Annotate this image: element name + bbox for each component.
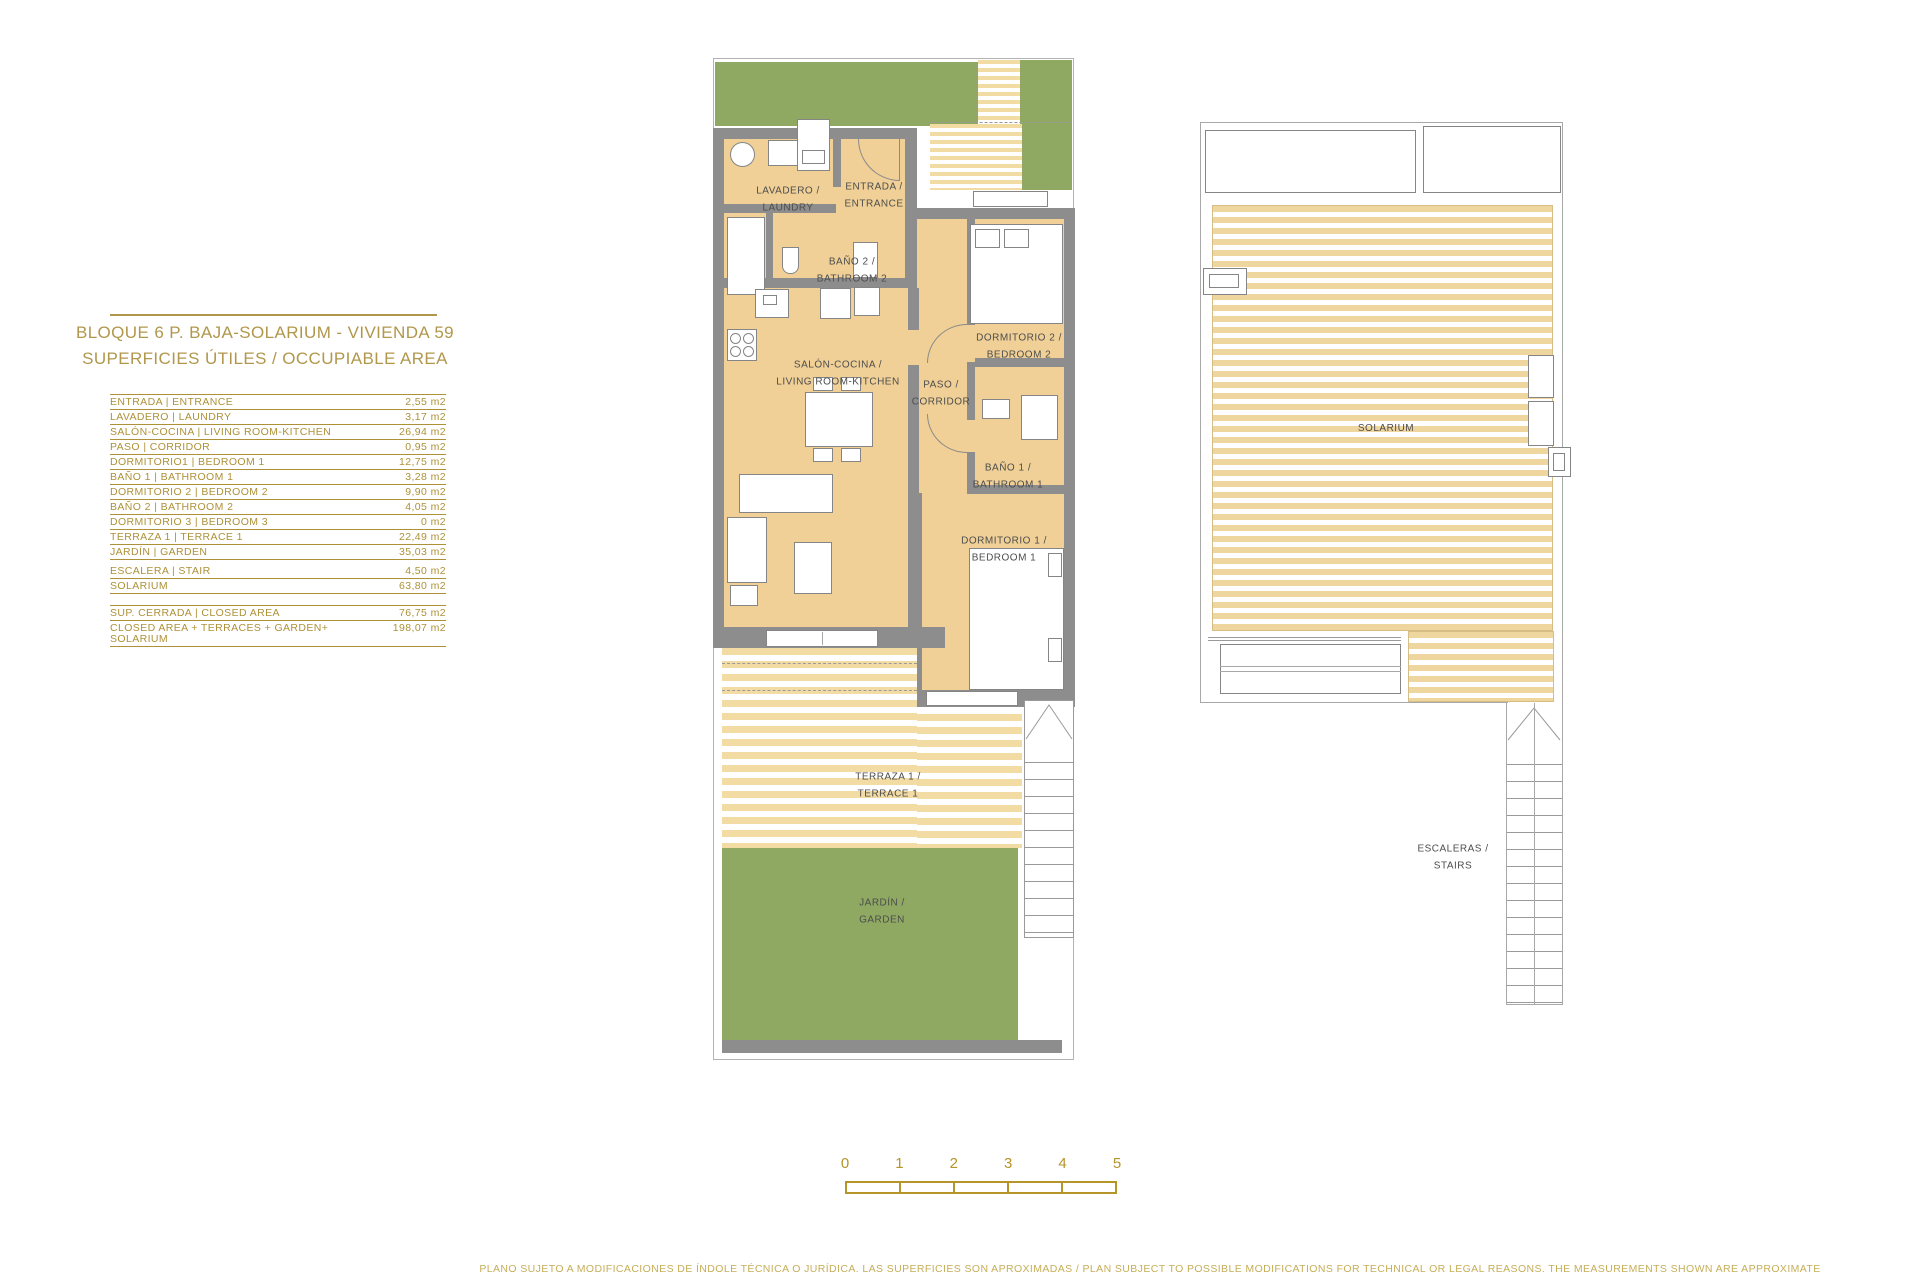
table-row: TERRAZA 1 | TERRACE 122,49 m2: [110, 530, 446, 545]
row-value: 9,90 m2: [397, 487, 446, 498]
chair: [841, 448, 861, 462]
room-label-laundry: LAVADERO / LAUNDRY: [756, 184, 820, 217]
scale-tick: 5: [1113, 1155, 1121, 1172]
disclaimer-text: PLANO SUJETO A MODIFICACIONES DE ÍNDOLE …: [420, 1263, 1880, 1275]
closet: [727, 217, 765, 295]
kitchen-counter: [854, 287, 880, 316]
row-value: 26,94 m2: [391, 427, 446, 438]
row-value: 4,50 m2: [397, 566, 446, 577]
stairs-direction-arrow-icon: [1025, 703, 1073, 741]
table-row: DORMITORIO 2 | BEDROOM 29,90 m2: [110, 485, 446, 500]
wall: [913, 208, 1075, 219]
boiler: [730, 142, 755, 167]
stair-center-line: [1534, 703, 1535, 1004]
row-label: DORMITORIO 3 | BEDROOM 3: [110, 517, 268, 528]
title-rule: [110, 314, 437, 316]
table-row: PASO | CORRIDOR0,95 m2: [110, 440, 446, 455]
room-label-solarium: SOLARIUM: [1358, 421, 1414, 438]
front-garden: [715, 62, 978, 126]
room-label-bedroom2: DORMITORIO 2 / BEDROOM 2: [976, 331, 1062, 364]
entry-walkway: [978, 60, 1020, 124]
garden-rear-wall: [722, 1040, 1062, 1053]
row-label: DORMITORIO 2 | BEDROOM 2: [110, 487, 268, 498]
row-label: ENTRADA | ENTRANCE: [110, 397, 233, 408]
scale-tick: 3: [1004, 1155, 1012, 1172]
chair: [813, 448, 833, 462]
room-label-livingroom: SALÓN-COCINA / LIVING ROOM-KITCHEN: [776, 358, 899, 391]
area-table-summary-group: SUP. CERRADA | CLOSED AREA76,75 m2 CLOSE…: [110, 605, 446, 647]
pillow: [1048, 638, 1062, 662]
solarium-stairwell: [1507, 703, 1562, 1004]
row-value: 4,05 m2: [397, 502, 446, 513]
side-table: [730, 585, 758, 606]
scale-bar-segment: [1009, 1183, 1063, 1192]
row-value: 63,80 m2: [391, 581, 446, 592]
row-label: BAÑO 1 | BATHROOM 1: [110, 472, 233, 483]
pillow: [1048, 553, 1062, 577]
front-garden: [1022, 124, 1072, 190]
room-label-bathroom2: BAÑO 2 / BATHROOM 2: [817, 255, 887, 288]
window-divider: [822, 632, 823, 645]
scale-bar-numbers: 0 1 2 3 4 5: [845, 1155, 1117, 1175]
pergola-dashed-line: [722, 690, 917, 691]
row-label: SALÓN-COCINA | LIVING ROOM-KITCHEN: [110, 427, 331, 438]
table-row: SOLARIUM63,80 m2: [110, 579, 446, 594]
pillow: [1004, 229, 1029, 248]
stove-burner: [743, 333, 754, 344]
row-label: PASO | CORRIDOR: [110, 442, 210, 453]
row-label: SUP. CERRADA | CLOSED AREA: [110, 608, 280, 619]
room-label-entrance: ENTRADA / ENTRANCE: [844, 180, 903, 213]
area-table-main-group: ENTRADA | ENTRANCE2,55 m2 LAVADERO | LAU…: [110, 394, 446, 594]
row-value: 3,17 m2: [397, 412, 446, 423]
solarium-outline: [1200, 702, 1508, 703]
table-row: DORMITORIO1 | BEDROOM 112,75 m2: [110, 455, 446, 470]
table-row: CLOSED AREA + TERRACES + GARDEN+ SOLARIU…: [110, 621, 446, 647]
window: [926, 691, 1018, 706]
scale-tick: 0: [841, 1155, 849, 1172]
laundry-counter: [768, 140, 798, 166]
scale-bar-segment: [847, 1183, 901, 1192]
row-label: TERRAZA 1 | TERRACE 1: [110, 532, 243, 543]
table-row: ESCALERA | STAIR4,50 m2: [110, 564, 446, 579]
room-label-stairs: ESCALERAS / STAIRS: [1417, 842, 1488, 875]
row-value: 22,49 m2: [391, 532, 446, 543]
scale-bar: [845, 1181, 1117, 1194]
plan-subtitle: SUPERFICIES ÚTILES / OCCUPIABLE AREA: [60, 349, 470, 369]
row-label: JARDÍN | GARDEN: [110, 547, 207, 558]
bathroom-sink: [982, 399, 1010, 419]
wall: [766, 213, 773, 278]
wall: [833, 139, 841, 187]
table-row: LAVADERO | LAUNDRY3,17 m2: [110, 410, 446, 425]
pergola-box: [1220, 644, 1401, 694]
wall: [1064, 219, 1075, 707]
stove-burner: [730, 333, 741, 344]
boundary-dashed-line: [930, 122, 1072, 123]
plan-title: BLOQUE 6 P. BAJA-SOLARIUM - VIVIENDA 59: [60, 323, 470, 343]
pillow: [975, 229, 1000, 248]
solarium-outline: [1506, 1004, 1563, 1005]
sofa: [727, 517, 767, 583]
table-row: ENTRADA | ENTRANCE2,55 m2: [110, 395, 446, 410]
row-label: LAVADERO | LAUNDRY: [110, 412, 231, 423]
row-value: 198,07 m2: [385, 623, 446, 634]
row-value: 2,55 m2: [397, 397, 446, 408]
row-value: 35,03 m2: [391, 547, 446, 558]
row-label: ESCALERA | STAIR: [110, 566, 211, 577]
planter-box-inner: [1209, 274, 1239, 288]
stair-steps: [1025, 746, 1073, 933]
floorplan-page: BLOQUE 6 P. BAJA-SOLARIUM - VIVIENDA 59 …: [0, 0, 1920, 1280]
pergola-box-line: [1220, 666, 1401, 667]
shower: [1021, 395, 1058, 440]
solarium-outline: [1200, 122, 1201, 703]
row-label: SOLARIUM: [110, 581, 168, 592]
row-value: 76,75 m2: [391, 608, 446, 619]
table-row: JARDÍN | GARDEN35,03 m2: [110, 545, 446, 560]
solarium-deck: [1408, 631, 1554, 702]
pergola-rail: [1208, 637, 1401, 641]
exterior-stairs: [1024, 700, 1074, 938]
kitchen-counter: [820, 288, 851, 319]
row-value: 12,75 m2: [391, 457, 446, 468]
solarium-header-block: [1423, 126, 1561, 193]
solarium-deck: [1212, 205, 1553, 631]
entry-step: [973, 191, 1048, 207]
washing-machine-drum: [802, 150, 825, 164]
scale-tick: 2: [950, 1155, 958, 1172]
room-label-garden: JARDÍN / GARDEN: [859, 896, 905, 929]
entry-patio: [930, 124, 1022, 190]
terrace-area: [917, 714, 1022, 848]
pergola-dashed-line: [722, 663, 917, 664]
row-value: 0,95 m2: [397, 442, 446, 453]
pergola-box-line: [1220, 671, 1401, 672]
row-value: 3,28 m2: [397, 472, 446, 483]
scale-bar-segment: [901, 1183, 955, 1192]
toilet: [782, 247, 799, 274]
terrace-area: [722, 648, 917, 848]
wall: [908, 288, 919, 330]
table-row: SUP. CERRADA | CLOSED AREA76,75 m2: [110, 606, 446, 621]
wall: [713, 139, 724, 648]
wall-fixture-inner: [1553, 453, 1565, 471]
row-value: 0 m2: [413, 517, 446, 528]
scale-tick: 4: [1058, 1155, 1066, 1172]
room-label-bathroom1: BAÑO 1 / BATHROOM 1: [973, 461, 1043, 494]
kitchen-sink-basin: [763, 295, 777, 305]
dining-table: [805, 392, 873, 447]
solarium-bench: [1528, 401, 1554, 446]
scale-bar-segment: [1063, 1183, 1115, 1192]
scale-tick: 1: [895, 1155, 903, 1172]
scale-bar-segment: [955, 1183, 1009, 1192]
garden-area: [722, 848, 1018, 1040]
row-label: BAÑO 2 | BATHROOM 2: [110, 502, 233, 513]
solarium-outline: [1562, 122, 1563, 1005]
row-label: CLOSED AREA + TERRACES + GARDEN+ SOLARIU…: [110, 623, 385, 645]
room-label-bedroom1: DORMITORIO 1 / BEDROOM 1: [961, 534, 1047, 567]
table-row: SALÓN-COCINA | LIVING ROOM-KITCHEN26,94 …: [110, 425, 446, 440]
front-garden: [1020, 60, 1072, 124]
solarium-outline: [1200, 122, 1563, 123]
stove-burner: [730, 346, 741, 357]
coffee-table: [794, 542, 832, 594]
sofa: [739, 474, 833, 513]
stove-burner: [743, 346, 754, 357]
room-label-corridor: PASO / CORRIDOR: [912, 378, 970, 411]
table-row: BAÑO 2 | BATHROOM 24,05 m2: [110, 500, 446, 515]
table-row: BAÑO 1 | BATHROOM 13,28 m2: [110, 470, 446, 485]
room-label-terrace: TERRAZA 1 / TERRACE 1: [855, 770, 921, 803]
solarium-header-block: [1205, 130, 1416, 193]
area-table: ENTRADA | ENTRANCE2,55 m2 LAVADERO | LAU…: [110, 394, 446, 647]
table-row: DORMITORIO 3 | BEDROOM 30 m2: [110, 515, 446, 530]
row-label: DORMITORIO1 | BEDROOM 1: [110, 457, 265, 468]
solarium-bench: [1528, 355, 1554, 398]
